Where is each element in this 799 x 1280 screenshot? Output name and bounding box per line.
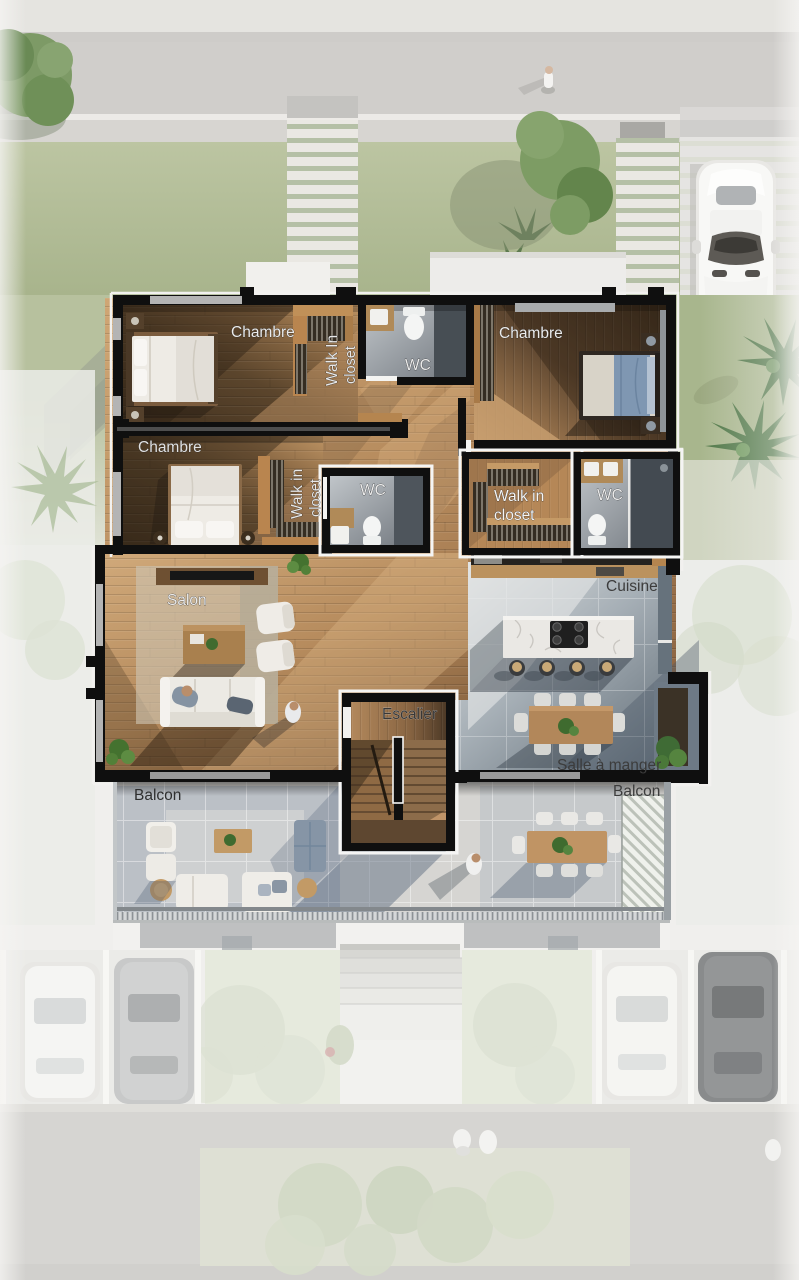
svg-text:Salle à manger: Salle à manger [557, 757, 661, 774]
svg-text:Salon: Salon [167, 592, 207, 609]
svg-text:Walk in: Walk in [289, 469, 306, 519]
svg-text:closet: closet [494, 507, 535, 524]
svg-text:Chambre: Chambre [138, 439, 202, 456]
svg-text:WC: WC [597, 487, 623, 504]
svg-text:closet: closet [343, 346, 359, 384]
svg-text:Walk in: Walk in [494, 488, 544, 505]
svg-text:Chambre: Chambre [499, 325, 563, 342]
svg-text:Balcon: Balcon [134, 787, 181, 804]
svg-text:Cuisine: Cuisine [606, 578, 658, 595]
svg-text:Balcon: Balcon [613, 783, 660, 800]
svg-text:Escalier: Escalier [382, 706, 437, 723]
svg-text:WC: WC [405, 357, 431, 374]
svg-text:Walk In: Walk In [324, 335, 341, 386]
svg-text:closet: closet [308, 479, 324, 517]
svg-text:WC: WC [360, 482, 386, 499]
svg-text:Chambre: Chambre [231, 324, 295, 341]
